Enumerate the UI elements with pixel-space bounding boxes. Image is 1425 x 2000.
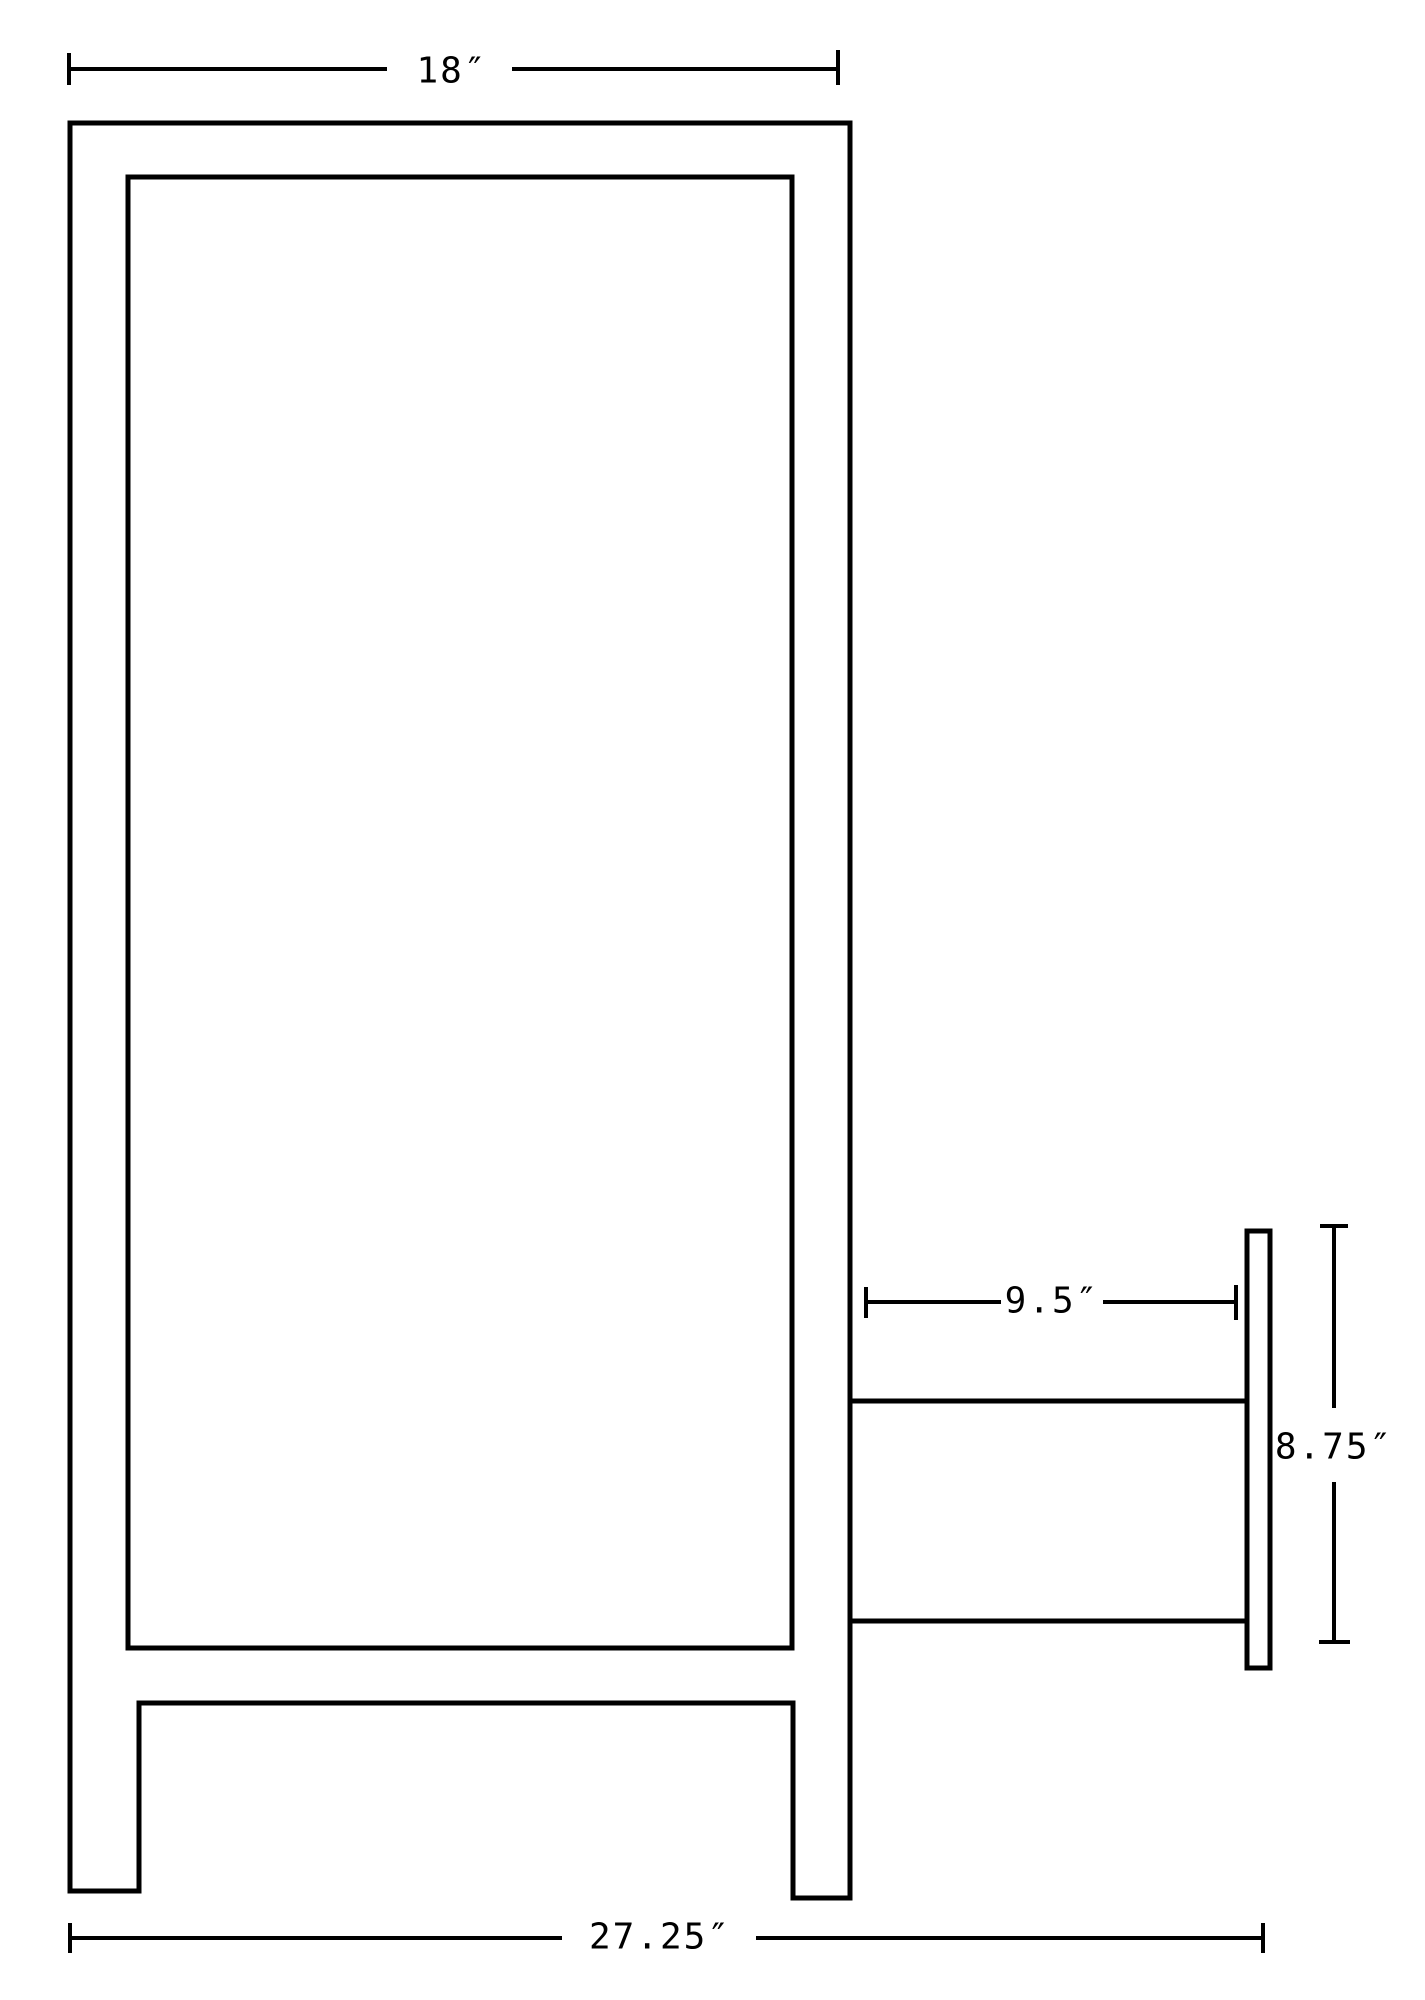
dimension-bracket-depth: 9.5″ <box>866 1281 1236 1322</box>
technical-drawing: 18″ 9.5″ 8.75″ 27.25″ <box>0 0 1425 2000</box>
cabinet-inner-panel <box>128 177 792 1648</box>
drawing-canvas: 18″ 9.5″ 8.75″ 27.25″ <box>0 0 1425 2000</box>
dimension-bracket-height: 8.75″ <box>1275 1226 1393 1642</box>
dimension-top-width-label: 18″ <box>416 51 487 92</box>
dimension-bracket-height-label: 8.75″ <box>1275 1427 1393 1468</box>
dimension-bracket-depth-label: 9.5″ <box>1005 1281 1100 1322</box>
dimension-top-width: 18″ <box>69 50 838 92</box>
dimension-overall-depth: 27.25″ <box>70 1917 1263 1958</box>
cabinet-body <box>70 123 850 1898</box>
dimension-overall-depth-label: 27.25″ <box>589 1917 731 1958</box>
wall-plate <box>1247 1231 1270 1668</box>
cabinet-outer-outline <box>70 123 850 1898</box>
